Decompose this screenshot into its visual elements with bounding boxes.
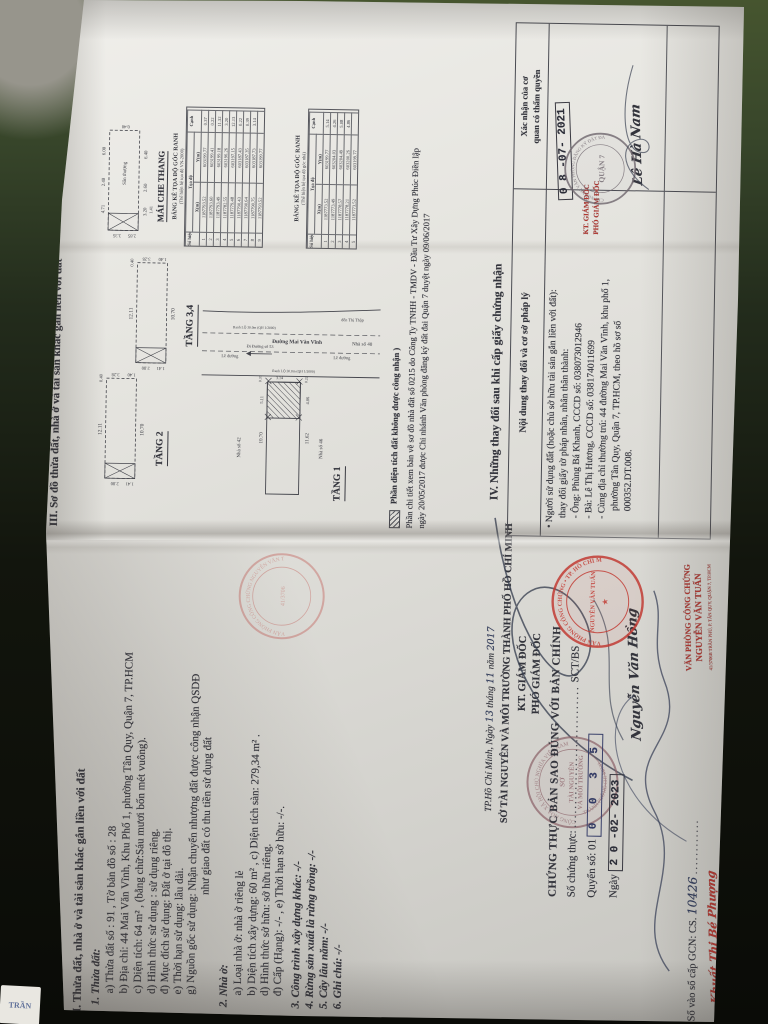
- parcel-origin-2: như giao đất có thu tiền sử dụng đất: [200, 737, 214, 895]
- dim-label: 6.00: [102, 146, 107, 155]
- dim-label: 3.14: [276, 375, 283, 380]
- dim-label: 2.40: [102, 177, 107, 186]
- svg-text:VĂN PHÒNG CÔNG CHỨNG NGUYỄN VĂ: VĂN PHÒNG CÔNG CHỨNG NGUYỄN VĂN TUẤN: [236, 555, 287, 642]
- cell: 5: [349, 234, 356, 248]
- lai-seal-center: 41/3706: [281, 586, 287, 606]
- tang1-label: TẦNG 1: [333, 467, 345, 502]
- dim-label: 10.70: [170, 308, 176, 321]
- dim-label: 2.85: [127, 233, 136, 238]
- dim-label: 1.40: [127, 372, 136, 377]
- change-entry-4: - Bà: Lê Thị Hương, CCCD số: 03817401169…: [585, 340, 598, 519]
- neighbor-46: Nhà số 46: [319, 438, 324, 459]
- neighbor-42: Nhà số 42: [237, 437, 242, 458]
- curb-label-1: Lề đường: [221, 353, 239, 358]
- other-constructions: 3. Công trình xây dựng khác: -/-: [291, 861, 305, 1009]
- house-grade: đ) Cấp (Hạng): -/- , e) Thời hạn sở hữu:…: [273, 806, 287, 996]
- dim-label: 5.11: [259, 396, 264, 404]
- dim-label: 10.70: [259, 432, 264, 444]
- notary-signer-name: Khuất Thị Bé Phượng: [705, 870, 721, 1005]
- legend-row: Phần diện tích đất không được công nhận …: [389, 348, 403, 529]
- col1-header: Nội dung thay đổi và cơ sở pháp lý: [518, 199, 533, 525]
- dim-label: 0.22: [304, 376, 308, 383]
- notary-seal-center: NGUYỄN VĂN TUẤN: [588, 571, 597, 632]
- dim-label: 12.11: [129, 307, 135, 319]
- note-line-2: ngày 20/05/2017 được Chi nhánh Văn phòng…: [417, 213, 431, 528]
- cell: [351, 112, 358, 134]
- dim-label: 0.40: [121, 124, 130, 129]
- ranh-label-1: Ranh LỘ 30.0m (QH 1/2000): [272, 368, 316, 374]
- notary-sctbs: SCT/BS: [569, 646, 582, 683]
- corner-label-text: TRẦN: [8, 1000, 31, 1010]
- photo-scene: TRẦN II. Thửa đất, nhà ở và tài sản khác…: [0, 0, 768, 1024]
- section2-2-title: 2. Nhà ở:: [219, 964, 231, 1007]
- section2-1-title: 1. Thửa đất:: [91, 949, 103, 1006]
- dim-label: 0.40: [129, 258, 134, 267]
- dim-label: 11.62: [305, 433, 310, 445]
- pen-mark: [68, 81, 72, 94]
- dim-label: 0.37: [258, 375, 262, 382]
- direction-label-1: Đi Đường số 53: [247, 344, 274, 349]
- notary-so-ct: Số chứng thực:: [565, 830, 578, 897]
- floorplan-tang2: 12.11 10.70 2.80 1.41 3.28 1.40 0.40: [90, 365, 152, 488]
- tang2-label: TẦNG 2: [156, 431, 168, 466]
- production-forest: 4. Rừng sản xuất là rừng trồng: -/-: [305, 850, 319, 1009]
- siteplan-tang1: 10.70 11.62 5.11 4.86 3.14 0.37 0.22 Nhà…: [199, 303, 380, 506]
- cell: 1187793.52: [255, 183, 263, 233]
- dim-label: 6.40: [144, 150, 149, 159]
- col-point: Số hiệu điểm: [307, 234, 321, 248]
- dim-label: 3.28: [142, 257, 151, 262]
- vpdk-seal-center: QUẬN 7: [597, 155, 606, 183]
- street-label: Đường Mai Văn Vĩnh: [272, 339, 322, 346]
- change-entry-6: phường Tân Quy, Quận 7, TP.HCM, theo hồ …: [611, 321, 624, 511]
- house-type: a) Loại nhà ở: nhà ở riêng lẻ: [233, 870, 246, 995]
- seal-giap-lai: VĂN PHÒNG CÔNG CHỨNG NGUYỄN VĂN TUẤN 41/…: [236, 550, 328, 642]
- cell: 603199.77: [350, 134, 358, 184]
- notes: 6. Ghi chú: -/-: [333, 944, 345, 1009]
- hatch-swatch-icon: [389, 510, 400, 528]
- dim-label: 1.41: [156, 366, 165, 371]
- dim-label: 0.40: [98, 373, 103, 382]
- col-edge: Cạnh: [187, 109, 201, 131]
- seal-notary-office: VĂN PHÒNG CÔNG CHỨNG • TP. HỒ CHÍ MINH N…: [549, 553, 647, 651]
- cell: 1187773.52: [349, 184, 357, 234]
- star-icon: ★: [601, 598, 610, 605]
- curb-label-2: Lề đường: [333, 355, 351, 360]
- san-thuong-label: Sân thượng: [123, 161, 128, 185]
- col-edge: Cạnh: [309, 112, 323, 134]
- notary-stamp-line1: VĂN PHÒNG CÔNG CHỨNG: [682, 564, 693, 671]
- direction-label-2: đến Thị Thập: [341, 317, 364, 322]
- dim-label: 2.80: [141, 366, 150, 371]
- signature-le-ha-nam: [609, 57, 661, 198]
- notary-stamp-line3: 41/3706B TRẦN PHÚ, P. TÂN QUY, QUẬN 7, T…: [707, 564, 714, 670]
- dim-label: 2.60: [144, 183, 149, 192]
- document-content: II. Thửa đất, nhà ở và tài sản khác gắn …: [28, 4, 746, 1024]
- change-entry-2: thay đổi giấy tờ pháp nhân, nhân thân th…: [559, 349, 571, 519]
- change-entry-3: - Ông: Phùng Bá Khanh, CCCD số: 03807301…: [572, 323, 585, 518]
- dim-label: 3.28: [111, 372, 120, 377]
- section4-heading: IV. Những thay đổi sau khi cấp giấy chứn…: [489, 232, 506, 532]
- parcel-number: a) Thửa đất số : 91 , Tờ bản đồ số : 28: [105, 826, 119, 994]
- parcel-term: e) Thời hạn sử dụng: lâu dài.: [173, 868, 186, 995]
- change-entry-7: 000352.DT.008.: [624, 449, 635, 511]
- ranh-label-2: Ranh LỘ 30.0m (QH 1/2000): [233, 324, 277, 330]
- corner-label: TRẦN: [0, 985, 41, 1024]
- notary-line1: CHỨNG THỰC BẢN SAO ĐÚNG VỚI BẢN CHÍNH: [547, 626, 563, 897]
- col2-header-1: Xác nhận của cơ: [519, 27, 530, 185]
- coord-table-2: BẢNG KÊ TỌA ĐỘ GÓC RANH (Thể hiện hệ tọa…: [294, 108, 359, 249]
- notary-stamp-block: VĂN PHÒNG CÔNG CHỨNG NGUYỄN VĂN TUẤN 41/…: [682, 561, 715, 674]
- maiche-label: MÁI CHE THANG: [156, 151, 168, 222]
- coord-table-1: BẢNG KÊ TỌA ĐỘ GÓC RANH (Thể hiện hệ tọa…: [172, 106, 265, 248]
- col2-header-2: quan có thẩm quyền: [531, 28, 542, 186]
- dim-label: 1.41: [125, 481, 134, 486]
- notary-stamp-line2: NGUYỄN VĂN TUẤN: [693, 573, 705, 661]
- certificate-paper: II. Thửa đất, nhà ở và tài sản khác gắn …: [0, 0, 768, 1024]
- floorplan-tang34: 12.11 10.70 2.80 1.41 3.28 1.40 0.40: [121, 249, 183, 372]
- cell: 603199.77: [256, 133, 264, 183]
- section2-heading: II. Thửa đất, nhà ở và tài sản khác gắn …: [72, 768, 88, 1016]
- cell: [257, 111, 264, 133]
- col-point: Số hiệu điểm: [185, 231, 199, 245]
- tang34-label: TẦNG 3,4: [186, 305, 198, 347]
- neighbor-40: Nhà số 40: [352, 342, 373, 347]
- dim-label: 1.40: [158, 257, 167, 262]
- dim-label: 10.70: [139, 423, 145, 436]
- dim-label: 2.80: [110, 481, 119, 486]
- section3-heading: III. Sơ đồ thửa đất, nhà ở và tài sản kh…: [49, 259, 65, 527]
- dim-label: 4.71: [101, 204, 106, 213]
- dim-label: 12.11: [97, 423, 103, 435]
- floorplan-maiche: 4.71 2.40 6.00 6.40 2.60 3.20 3.35 2.85 …: [92, 117, 156, 240]
- notary-line2: Số chứng thực: .........................…: [566, 646, 581, 898]
- lai-seal-ring: VĂN PHÒNG CÔNG CHỨNG NGUYỄN VĂN TUẤN: [236, 555, 287, 642]
- perennial-trees: 5. Cây lâu năm: -/-: [319, 923, 331, 1009]
- section4-table: Nội dung thay đổi và cơ sở pháp lý Xác n…: [507, 22, 720, 539]
- legend-text: Phần diện tích đất không được công nhận …: [389, 348, 402, 504]
- notary-dots: ..............................: [567, 685, 581, 828]
- dim-label: 1.41: [148, 206, 153, 214]
- dim-label: 4.86: [305, 396, 310, 405]
- cell: 9: [255, 233, 262, 247]
- dim-label: 3.35: [112, 233, 121, 238]
